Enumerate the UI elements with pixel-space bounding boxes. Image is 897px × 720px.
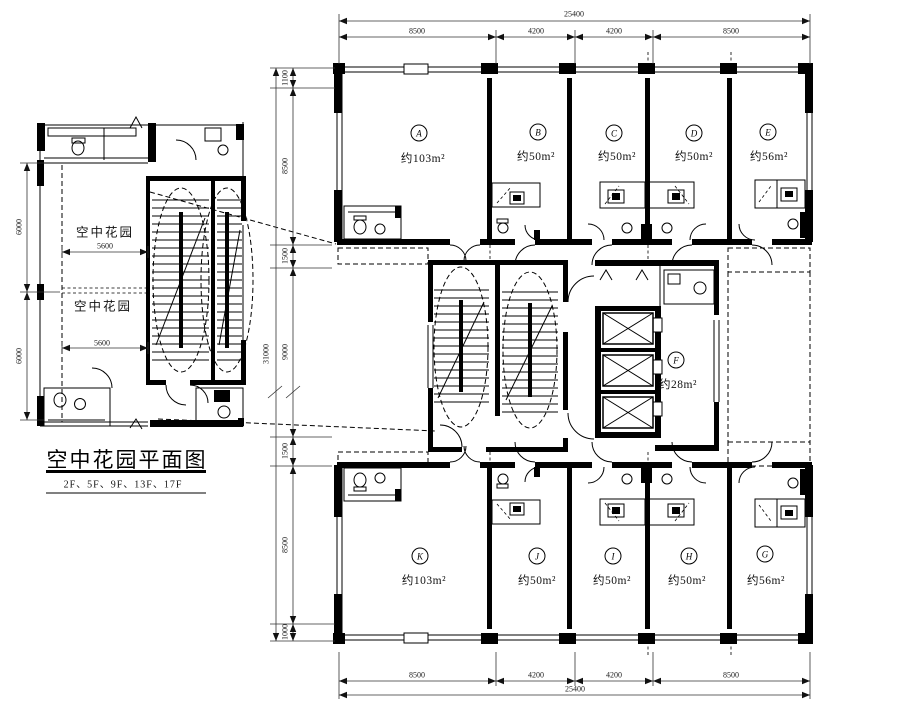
unit-tag-e: E: [760, 124, 777, 141]
dimension-lines: [20, 14, 810, 699]
unit-tag-h: H: [681, 548, 698, 565]
dim-top-total: 25400: [564, 10, 584, 19]
unit-tag-a: A: [411, 125, 428, 142]
garden-room-label-1: 空中花园: [76, 222, 134, 241]
dim-left-seg-1: 1100: [281, 70, 290, 86]
unit-area-c: 约50m²: [598, 148, 636, 164]
unit-tag-k: K: [412, 548, 429, 565]
dim-bottom-seg-3: 4200: [606, 671, 622, 680]
plan-title: 空中花园平面图: [47, 444, 208, 474]
unit-area-f: 约28m²: [659, 376, 697, 392]
unit-tag-i: I: [605, 548, 622, 565]
detail-dim-height-2: 6000: [15, 348, 24, 364]
garden-room-width-1: 5600: [97, 242, 113, 251]
dim-top-seg-1: 8500: [409, 27, 425, 36]
main-plan-core: [338, 245, 810, 466]
dim-left-seg-7: 1000: [281, 624, 290, 640]
unit-area-b: 约50m²: [517, 148, 555, 164]
unit-area-k: 约103m²: [402, 572, 446, 588]
garden-room-label-2: 空中花园: [74, 296, 132, 315]
dim-bottom-seg-2: 4200: [528, 671, 544, 680]
unit-area-e: 约56m²: [750, 148, 788, 164]
unit-tag-c: C: [606, 125, 623, 142]
unit-tag-f: F: [668, 352, 685, 369]
dim-left-seg-6: 8500: [281, 537, 290, 553]
unit-tag-d: D: [686, 125, 703, 142]
dim-left-seg-4: 9000: [281, 344, 290, 360]
unit-tag-b: B: [530, 124, 547, 141]
unit-tag-g: G: [757, 546, 774, 563]
unit-area-d: 约50m²: [675, 148, 713, 164]
dim-top-seg-3: 4200: [606, 27, 622, 36]
unit-area-a: 约103m²: [401, 150, 445, 166]
blueprint-canvas: 25400 8500 4200 4200 8500 8500 4200 4200…: [0, 0, 897, 720]
main-plan-bottom-band: [333, 442, 813, 655]
dim-left-seg-5: 1500: [281, 443, 290, 459]
detail-dim-height-1: 6000: [15, 219, 24, 235]
unit-area-h: 约50m²: [668, 572, 706, 588]
dim-top-seg-2: 4200: [528, 27, 544, 36]
unit-tag-j: J: [529, 548, 546, 565]
unit-area-i: 约50m²: [593, 572, 631, 588]
dim-bottom-total: 25400: [565, 685, 585, 694]
dim-left-seg-2: 8500: [281, 158, 290, 174]
dim-left-total: 31000: [262, 344, 271, 364]
garden-room-width-2: 5600: [94, 339, 110, 348]
detail-plan: [37, 117, 253, 429]
unit-area-g: 约56m²: [747, 572, 785, 588]
dim-top-seg-4: 8500: [723, 27, 739, 36]
dim-bottom-seg-1: 8500: [409, 671, 425, 680]
dim-left-seg-3: 1500: [281, 248, 290, 264]
floor-plan-drawing: [0, 0, 897, 720]
dim-bottom-seg-4: 8500: [723, 671, 739, 680]
unit-area-j: 约50m²: [518, 572, 556, 588]
plan-floors: 2F、5F、9F、13F、17F: [64, 476, 183, 491]
